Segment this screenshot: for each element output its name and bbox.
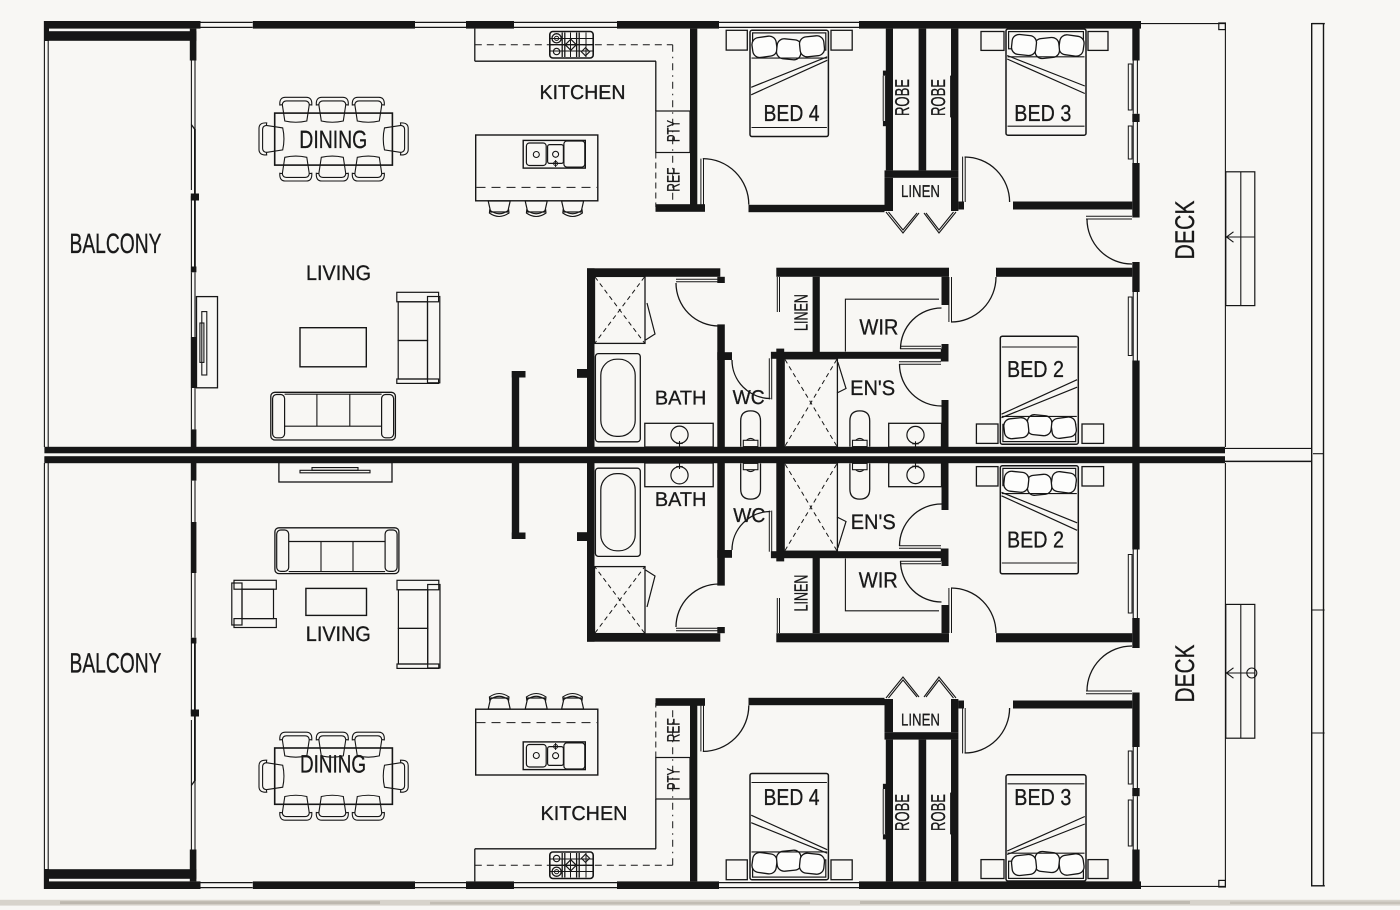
svg-text:LINEN: LINEN [792,575,813,612]
svg-text:WC: WC [733,505,765,527]
svg-text:WIR: WIR [859,568,898,593]
svg-text:DECK: DECK [1170,645,1200,703]
svg-text:BED 2: BED 2 [1007,527,1064,553]
svg-text:ROBE: ROBE [928,79,950,116]
svg-text:BATH: BATH [655,388,707,410]
svg-text:WIR: WIR [859,315,898,340]
svg-text:DINING: DINING [300,751,366,779]
svg-text:BED 2: BED 2 [1007,356,1064,382]
svg-text:EN'S: EN'S [850,377,895,400]
svg-text:PTY: PTY [664,120,684,142]
svg-text:LIVING: LIVING [306,623,371,646]
svg-text:ROBE: ROBE [892,794,914,831]
svg-text:REF: REF [664,718,684,742]
svg-text:KITCHEN: KITCHEN [541,803,628,825]
svg-text:LINEN: LINEN [792,294,813,331]
svg-text:REF: REF [664,168,684,192]
svg-text:EN'S: EN'S [851,511,896,534]
svg-text:DECK: DECK [1170,201,1200,260]
svg-text:BED 3: BED 3 [1014,784,1071,810]
svg-text:WC: WC [733,387,765,409]
svg-text:DINING: DINING [299,126,367,154]
svg-text:LIVING: LIVING [306,262,371,285]
svg-text:KITCHEN: KITCHEN [540,82,626,104]
svg-text:BED 3: BED 3 [1014,100,1071,126]
svg-text:LINEN: LINEN [901,182,940,201]
svg-text:BATH: BATH [655,489,707,511]
svg-text:BED 4: BED 4 [764,784,820,810]
svg-text:BALCONY: BALCONY [70,648,162,679]
svg-text:ROBE: ROBE [892,79,914,116]
svg-text:PTY: PTY [664,768,684,790]
svg-text:BED 4: BED 4 [764,100,820,126]
svg-text:LINEN: LINEN [901,711,940,730]
svg-text:ROBE: ROBE [928,794,950,831]
svg-text:BALCONY: BALCONY [70,228,162,259]
